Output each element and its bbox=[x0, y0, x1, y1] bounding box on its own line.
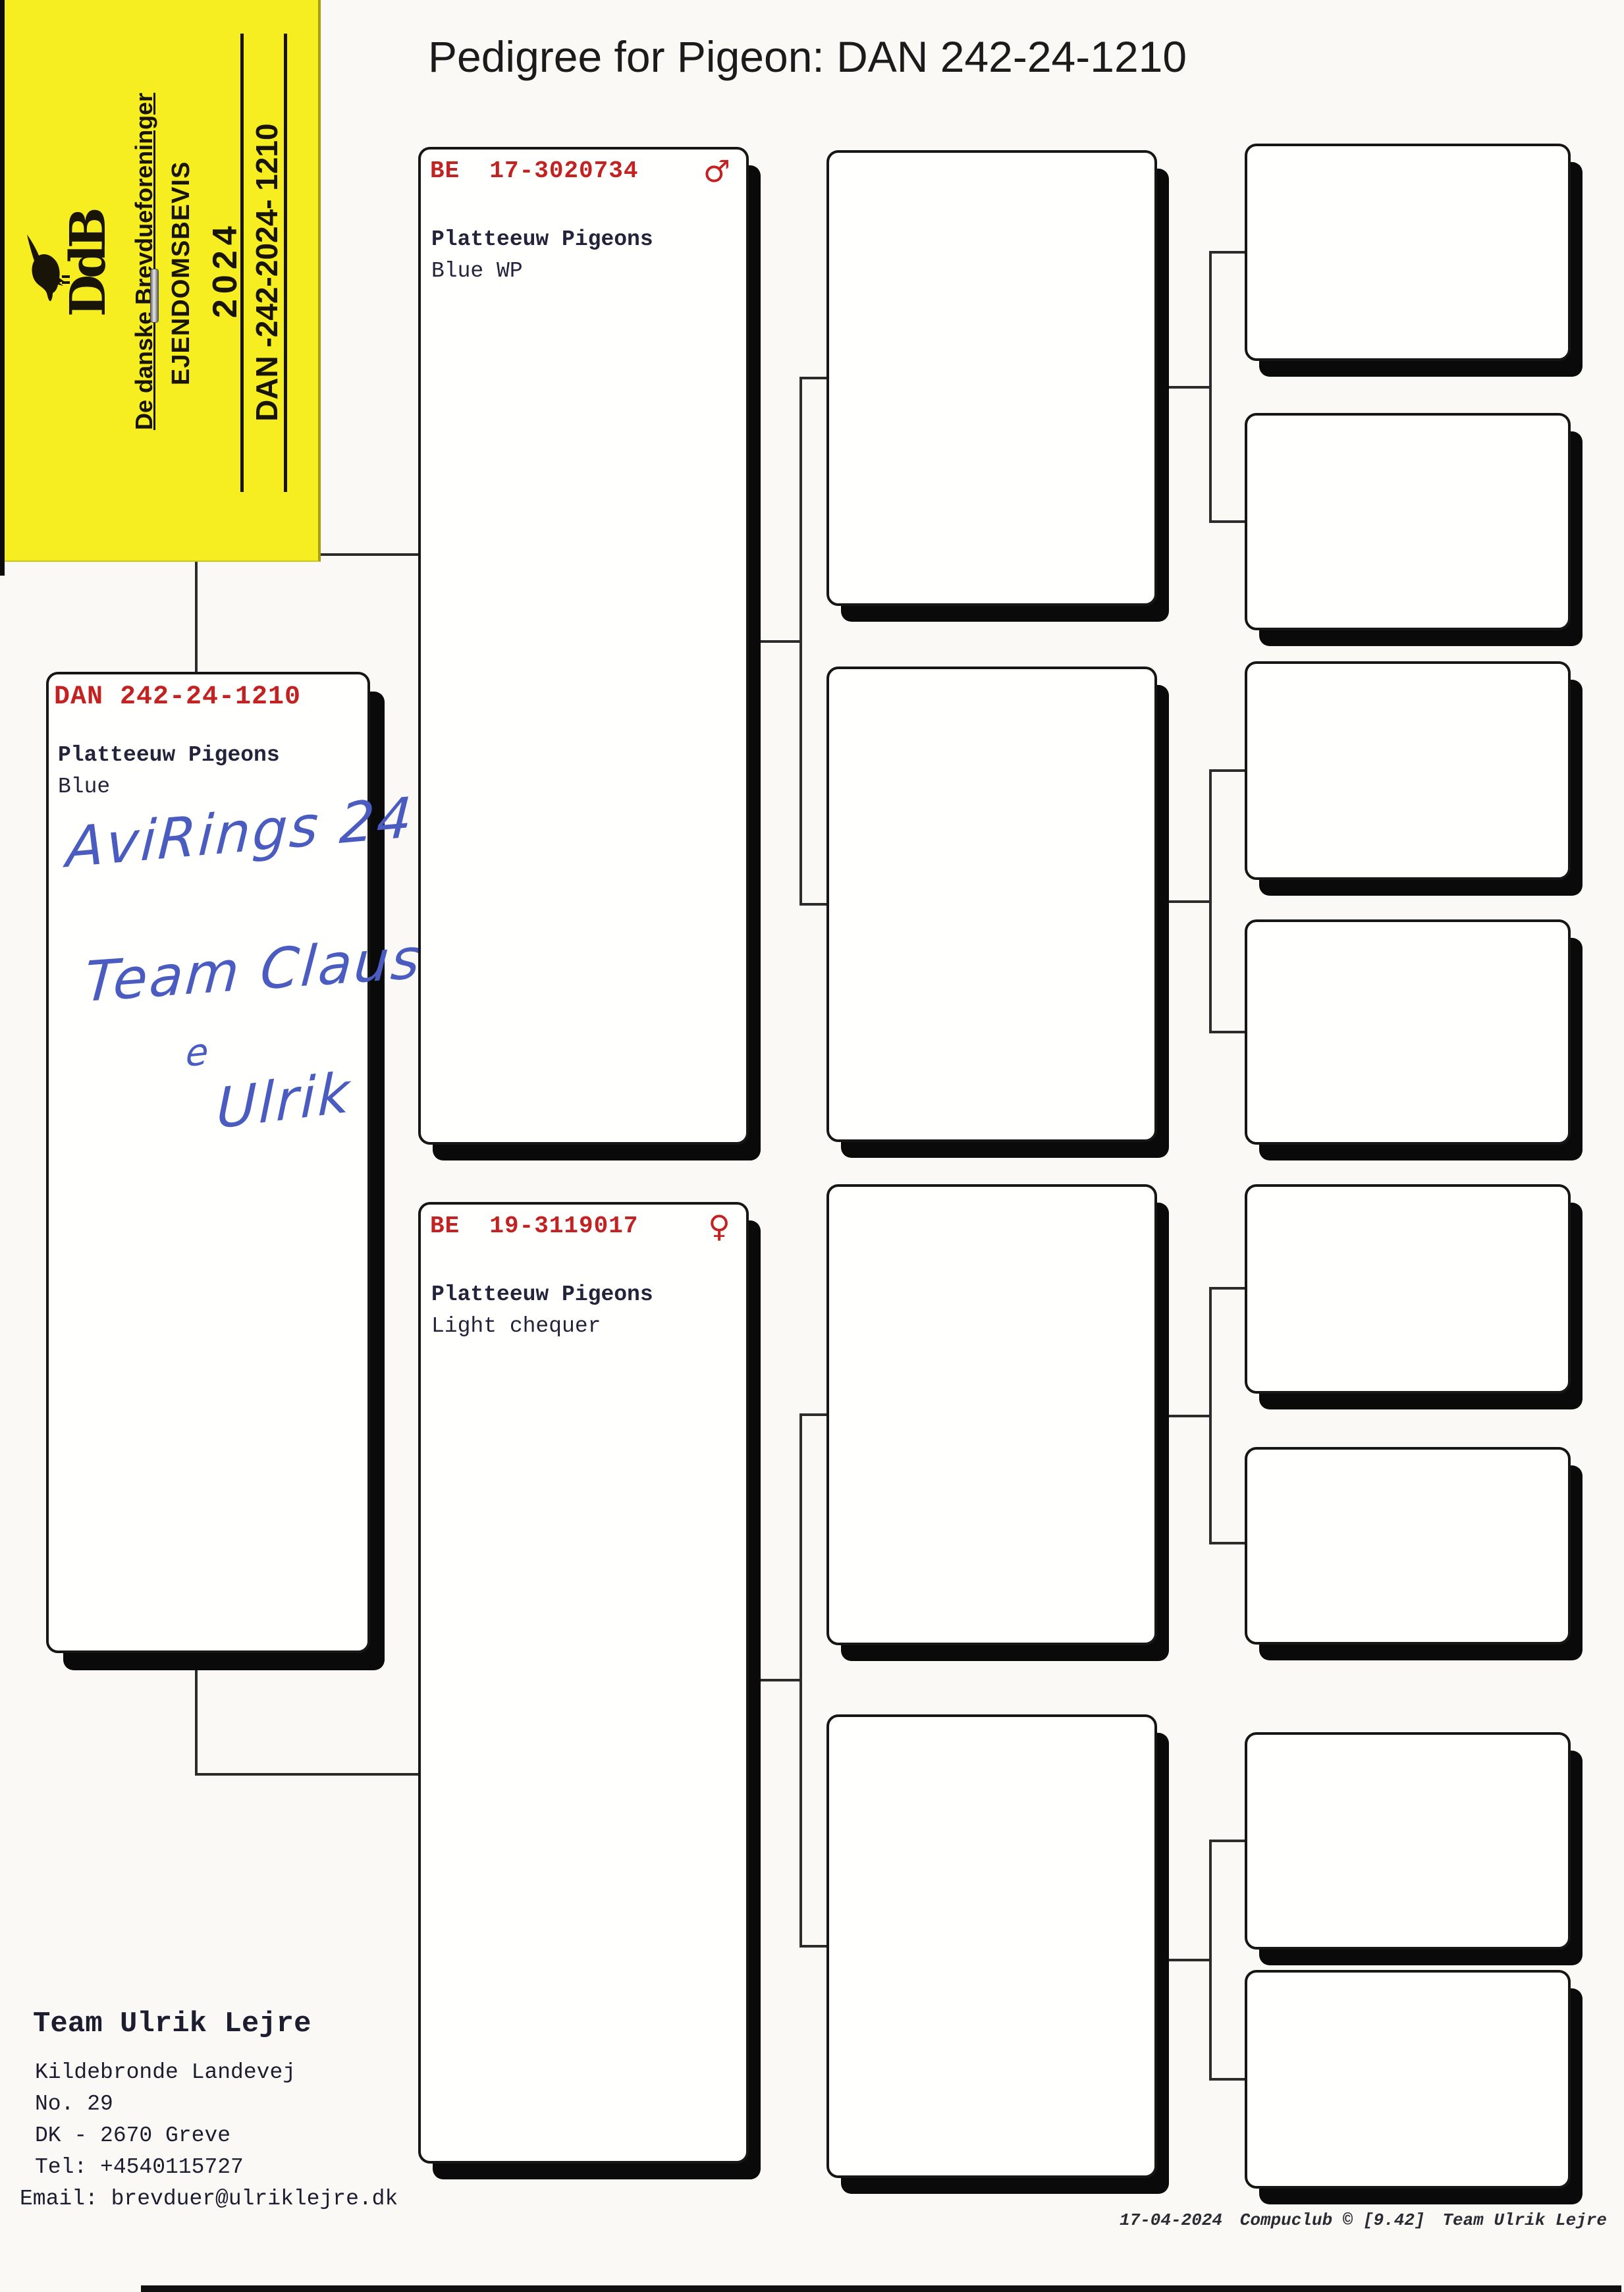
connector-line bbox=[1209, 1287, 1245, 1290]
subject-colour: Blue bbox=[58, 775, 110, 799]
subject-loft-name: Platteeuw Pigeons bbox=[58, 743, 280, 767]
connector-line bbox=[1209, 771, 1212, 1032]
owner-name: Team Ulrik Lejre bbox=[33, 2007, 311, 2040]
sire-ring-number: BE 17-3020734 bbox=[430, 157, 638, 184]
ancestor-box-gen3-2 bbox=[826, 667, 1157, 1142]
connector-line bbox=[1209, 769, 1245, 772]
footer-author: Team Ulrik Lejre bbox=[1442, 2210, 1607, 2230]
connector-line bbox=[1209, 1542, 1245, 1544]
ownership-sticker: DdB De danske Brevdueforeninger EJENDOMS… bbox=[0, 0, 321, 562]
connector-line bbox=[799, 1945, 826, 1948]
connector-line bbox=[1157, 900, 1209, 903]
sticker-rule bbox=[284, 34, 287, 492]
connector-line bbox=[1209, 520, 1245, 523]
connector-line bbox=[1209, 1841, 1212, 2079]
connector-line bbox=[1157, 386, 1209, 389]
ancestor-box-gen4-7 bbox=[1245, 1732, 1571, 1950]
connector-line bbox=[799, 378, 802, 906]
owner-city: DK - 2670 Greve bbox=[35, 2123, 230, 2148]
connector-line bbox=[749, 1679, 801, 1681]
handwriting-note-amp: e bbox=[185, 1030, 211, 1076]
sticker-cert-type-label: EJENDOMSBEVIS bbox=[167, 161, 196, 385]
staple bbox=[150, 269, 159, 323]
connector-line bbox=[195, 1652, 198, 1776]
connector-line bbox=[799, 903, 826, 906]
footer-software: Compuclub © [9.42] bbox=[1240, 2210, 1425, 2230]
connector-line bbox=[1157, 1959, 1209, 1961]
sire-loft-name: Platteeuw Pigeons bbox=[431, 227, 653, 252]
owner-phone: Tel: +4540115727 bbox=[35, 2155, 244, 2179]
ancestor-box-gen4-6 bbox=[1245, 1447, 1571, 1645]
ancestor-box-gen3-3 bbox=[826, 1184, 1157, 1645]
ancestor-box-gen4-1 bbox=[1245, 144, 1571, 361]
sticker-ring-number: DAN -242-2024- 1210 bbox=[249, 123, 284, 422]
ancestor-box-gen4-5 bbox=[1245, 1184, 1571, 1394]
connector-line bbox=[749, 640, 801, 643]
sticker-rule bbox=[240, 34, 244, 492]
owner-email: Email: brevduer@ulriklejre.dk bbox=[20, 2187, 398, 2211]
dam-ring-number: BE 19-3119017 bbox=[430, 1213, 638, 1240]
ancestor-box-gen4-3 bbox=[1245, 661, 1571, 880]
sticker-org-label: De danske Brevdueforeninger bbox=[130, 93, 158, 430]
scan-edge-bottom bbox=[141, 2285, 1621, 2292]
connector-line bbox=[1209, 2078, 1245, 2081]
dam-box: BE 19-3119017 ♀ Platteeuw Pigeons Light … bbox=[418, 1202, 749, 2164]
scan-edge-left bbox=[0, 0, 5, 576]
ancestor-box-gen3-4 bbox=[826, 1714, 1157, 2178]
male-icon: ♂ bbox=[703, 153, 730, 189]
ancestor-box-gen4-4 bbox=[1245, 919, 1571, 1145]
connector-line bbox=[1157, 1415, 1209, 1417]
sticker-year-label: 2024 bbox=[205, 221, 245, 318]
ddb-monogram-label: DdB bbox=[61, 211, 116, 317]
subject-ring-number: DAN 242-24-1210 bbox=[54, 682, 301, 712]
dam-loft-name: Platteeuw Pigeons bbox=[431, 1282, 653, 1307]
footer-date: 17-04-2024 bbox=[1120, 2210, 1222, 2230]
connector-line bbox=[799, 377, 826, 379]
connector-line bbox=[1209, 252, 1212, 522]
owner-street: Kildebronde Landevej bbox=[35, 2060, 296, 2085]
ancestor-box-gen4-2 bbox=[1245, 413, 1571, 630]
page-title: Pedigree for Pigeon: DAN 242-24-1210 bbox=[428, 32, 1187, 82]
connector-line bbox=[1209, 1288, 1212, 1543]
connector-line bbox=[799, 1415, 802, 1946]
connector-line bbox=[196, 1773, 418, 1776]
connector-line bbox=[1209, 1031, 1245, 1033]
female-icon: ♀ bbox=[708, 1209, 730, 1244]
owner-number: No. 29 bbox=[35, 2092, 113, 2116]
ancestor-box-gen3-1 bbox=[826, 150, 1157, 606]
print-footer: 17-04-2024 Compuclub © [9.42] Team Ulrik… bbox=[1120, 2210, 1607, 2230]
connector-line bbox=[799, 1413, 826, 1416]
ancestor-box-gen4-8 bbox=[1245, 1970, 1571, 2189]
dam-colour: Light chequer bbox=[431, 1314, 601, 1338]
connector-line bbox=[1209, 1840, 1245, 1842]
sticker-rotated-content: DdB De danske Brevdueforeninger EJENDOMS… bbox=[0, 0, 321, 562]
connector-line bbox=[1209, 251, 1245, 254]
sire-colour: Blue WP bbox=[431, 259, 523, 283]
connector-line bbox=[195, 553, 198, 673]
sire-box: BE 17-3020734 ♂ Platteeuw Pigeons Blue W… bbox=[418, 147, 749, 1145]
